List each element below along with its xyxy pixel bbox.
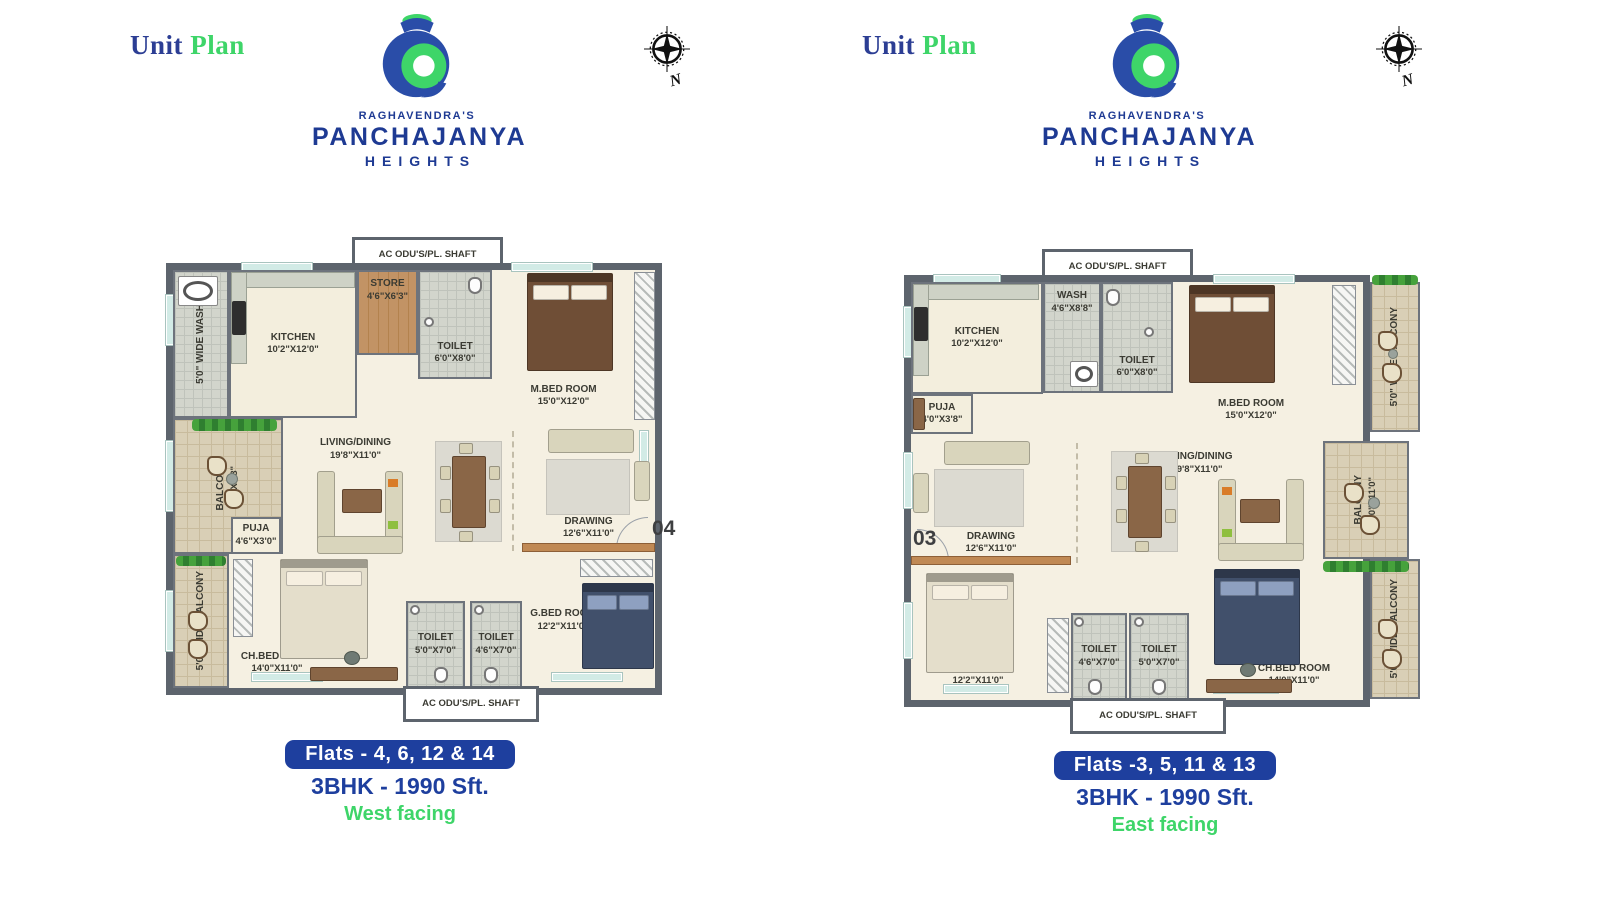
balcony-chair-icon <box>224 489 244 509</box>
flats-badge: Flats - 4, 6, 12 & 14 <box>285 740 514 769</box>
page-title: Unit Plan <box>862 30 977 61</box>
dining-chair-icon <box>440 499 451 513</box>
double-bed-icon <box>1189 285 1275 383</box>
dining-chair-icon <box>459 443 473 454</box>
puja-room: PUJA4'6"X3'0" <box>231 517 281 554</box>
armchair-icon <box>913 473 929 513</box>
double-bed-icon <box>926 573 1014 673</box>
balcony-chair-icon <box>1378 331 1398 351</box>
wood-sill <box>911 556 1071 565</box>
wardrobe-icon <box>580 559 653 577</box>
balcony-chair-icon <box>188 611 208 631</box>
flat-number-badge: 03 <box>913 527 936 551</box>
wc-icon <box>1106 289 1120 306</box>
flat-number-badge: 04 <box>652 517 675 541</box>
ac-odu-shaft-bottom: AC ODU'S/PL. SHAFT <box>403 686 539 722</box>
wood-sill <box>522 543 655 552</box>
unit-spec: 3BHK - 1990 Sft. <box>140 773 660 800</box>
wash-basin-icon <box>474 605 484 615</box>
side-table-icon <box>226 473 238 485</box>
double-bed-icon <box>582 583 654 669</box>
dining-chair-icon <box>1116 476 1127 490</box>
balcony-chair-icon <box>207 456 227 476</box>
dashed-partition <box>1076 443 1078 563</box>
coffee-table-icon <box>1240 499 1280 523</box>
hob-icon <box>232 301 246 335</box>
brand-suffix: HEIGHTS <box>1042 153 1252 169</box>
page-title-word1: Unit <box>862 30 915 60</box>
armchair-icon <box>634 461 650 501</box>
plant-icon <box>1372 275 1418 285</box>
dining-chair-icon <box>1135 453 1149 464</box>
wash-basin-icon <box>410 605 420 615</box>
compass-rose-icon: N <box>1376 26 1424 98</box>
double-bed-icon <box>280 559 368 659</box>
double-bed-icon <box>527 273 613 371</box>
balcony: BALCONY8'0"X11'0" <box>1323 441 1409 559</box>
facing-label: East facing <box>905 814 1425 837</box>
ac-odu-shaft-bottom: AC ODU'S/PL. SHAFT <box>1070 698 1226 734</box>
unit-plan-sheet: Unit Plan RAGHAVENDRA'S PANCHAJANYA HEIG… <box>0 0 1600 900</box>
side-table-icon <box>1388 349 1398 359</box>
dining-chair-icon <box>1165 509 1176 523</box>
desk-icon <box>1206 679 1292 693</box>
dining-chair-icon <box>489 466 500 480</box>
brand-suffix: HEIGHTS <box>312 153 522 169</box>
flats-badge: Flats -3, 5, 11 & 13 <box>1054 751 1276 780</box>
wc-icon <box>1152 679 1166 695</box>
dining-chair-icon <box>489 499 500 513</box>
cushion <box>388 521 398 529</box>
dining-chair-icon <box>459 531 473 542</box>
wash-basin-icon <box>1144 327 1154 337</box>
dining-chair-icon <box>1165 476 1176 490</box>
page-title-word2: Plan <box>922 30 977 60</box>
wash-basin-icon <box>1074 617 1084 627</box>
double-bed-icon <box>1214 569 1300 665</box>
store-room: STORE4'6"X6'3" <box>357 270 418 355</box>
wc-icon <box>434 667 448 683</box>
unit-spec: 3BHK - 1990 Sft. <box>905 784 1425 811</box>
floor-plan-east: AC ODU'S/PL. SHAFT KITCHEN10'2"X12'0" PU… <box>884 243 1424 735</box>
dining-chair-icon <box>1135 541 1149 552</box>
brand-prefix: RAGHAVENDRA'S <box>1042 110 1252 122</box>
kitchen-counter-icon <box>913 284 1039 300</box>
plant-icon <box>176 556 226 566</box>
cushion <box>1222 529 1232 537</box>
cushion <box>1222 487 1232 495</box>
cushion <box>388 479 398 487</box>
wardrobe-icon <box>634 272 655 420</box>
sofa-icon <box>1218 543 1304 561</box>
sofa-icon <box>944 441 1030 465</box>
dining-table-icon <box>1128 466 1162 538</box>
balcony-chair-icon <box>1344 483 1364 503</box>
brand-logo: RAGHAVENDRA'S PANCHAJANYA HEIGHTS <box>1042 12 1252 169</box>
kitchen-room: KITCHEN10'2"X12'0" <box>229 270 357 418</box>
compass-rose-icon: N <box>644 26 692 98</box>
floor-plan-west: AC ODU'S/PL. SHAFT 5'0" WIDE WASH KITCHE… <box>152 231 672 723</box>
brand-prefix: RAGHAVENDRA'S <box>312 110 522 122</box>
wardrobe-icon <box>233 559 253 637</box>
north-label: N <box>1400 71 1416 91</box>
sofa-icon <box>317 536 403 554</box>
wc-icon <box>1088 679 1102 695</box>
brand-name: PANCHAJANYA <box>1042 123 1252 152</box>
facing-label: West facing <box>140 803 660 826</box>
balcony-chair-icon <box>1360 515 1380 535</box>
desk-chair-icon <box>344 651 360 665</box>
coffee-table-icon <box>342 489 382 513</box>
side-table-icon <box>1368 497 1380 509</box>
puja-cabinet <box>913 398 925 430</box>
kitchen-counter-icon <box>231 272 355 288</box>
washing-machine-icon <box>178 276 218 306</box>
sofa-icon <box>548 429 634 453</box>
conch-logo-icon <box>1042 12 1252 106</box>
dining-chair-icon <box>1116 509 1127 523</box>
balcony-chair-icon <box>188 639 208 659</box>
wash-basin-icon <box>424 317 434 327</box>
plan-caption-west: Flats - 4, 6, 12 & 14 3BHK - 1990 Sft. W… <box>140 740 660 826</box>
brand-logo: RAGHAVENDRA'S PANCHAJANYA HEIGHTS <box>312 12 522 169</box>
conch-logo-icon <box>312 12 522 106</box>
wash-basin-icon <box>1134 617 1144 627</box>
wc-icon <box>468 277 482 294</box>
balcony-chair-icon <box>1382 649 1402 669</box>
wardrobe-icon <box>1047 618 1069 693</box>
dining-table-icon <box>452 456 486 528</box>
desk-icon <box>310 667 398 681</box>
balcony-chair-icon <box>1382 363 1402 383</box>
rug-icon <box>934 469 1024 527</box>
page-title: Unit Plan <box>130 30 245 61</box>
desk-chair-icon <box>1240 663 1256 677</box>
washing-machine-icon <box>1070 361 1098 387</box>
balcony-chair-icon <box>1378 619 1398 639</box>
wc-icon <box>484 667 498 683</box>
plant-icon <box>1323 561 1409 572</box>
plan-caption-east: Flats -3, 5, 11 & 13 3BHK - 1990 Sft. Ea… <box>905 751 1425 837</box>
dashed-partition <box>512 431 514 551</box>
dining-chair-icon <box>440 466 451 480</box>
brand-name: PANCHAJANYA <box>312 123 522 152</box>
page-title-word2: Plan <box>190 30 245 60</box>
plant-icon <box>192 419 277 431</box>
page-title-word1: Unit <box>130 30 183 60</box>
hob-icon <box>914 307 928 341</box>
wardrobe-icon <box>1332 285 1356 385</box>
north-label: N <box>668 71 684 91</box>
rug-icon <box>546 459 630 515</box>
